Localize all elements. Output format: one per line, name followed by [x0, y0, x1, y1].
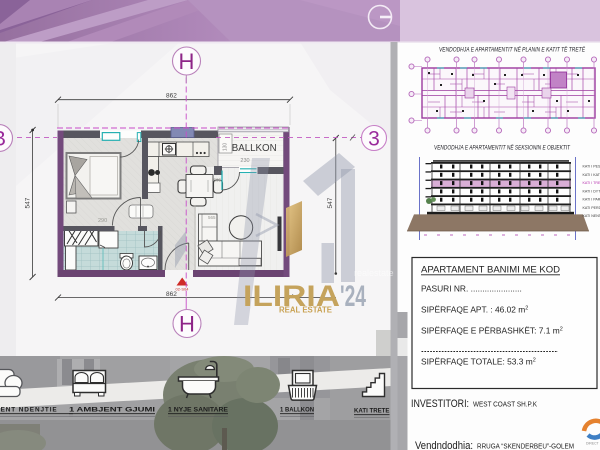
svg-text:BALLKON: BALLKON — [232, 143, 277, 154]
svg-text:'24: '24 — [340, 280, 366, 313]
svg-text:KATI I PESTE: KATI I PESTE — [583, 165, 600, 169]
svg-text:SIPËRFAQE E PËRBASHKËT: 7.1 m: SIPËRFAQE E PËRBASHKËT: 7.1 m2 — [421, 326, 563, 336]
svg-text:Vendndodhia:: Vendndodhia: — [415, 440, 473, 450]
svg-text:1 BALLKON: 1 BALLKON — [280, 407, 314, 414]
svg-text:KATI I DYTE: KATI I DYTE — [583, 189, 600, 193]
svg-text:547: 547 — [25, 197, 32, 208]
svg-text:3: 3 — [368, 128, 380, 151]
svg-text:505: 505 — [214, 178, 222, 183]
svg-text:PASURI NR. ...................: PASURI NR. ...................... — [421, 284, 522, 294]
svg-text:SIPËRFAQE TOTALE: 53.3 m2: SIPËRFAQE TOTALE: 53.3 m2 — [421, 357, 536, 367]
svg-text:KATI TRETE: KATI TRETE — [354, 408, 390, 415]
svg-text:B: B — [0, 128, 6, 151]
svg-text:02-S04: 02-S04 — [176, 287, 190, 292]
svg-text:290: 290 — [98, 218, 107, 224]
svg-text:230: 230 — [240, 158, 249, 164]
svg-text:VENDODHJA E APARTAMENTIT NË SE: VENDODHJA E APARTAMENTIT NË SEKSIONIN E … — [434, 145, 571, 152]
svg-text:1 NYJE SANITARE: 1 NYJE SANITARE — [168, 407, 229, 414]
svg-text:862: 862 — [166, 93, 177, 100]
svg-text:H: H — [179, 49, 195, 74]
svg-text:565: 565 — [208, 215, 216, 220]
svg-text:862: 862 — [166, 291, 177, 298]
svg-text:KATI NENTOKE: KATI NENTOKE — [583, 214, 600, 218]
svg-text:KATI I TRETE: KATI I TRETE — [583, 181, 600, 185]
svg-text:KATI I PARE: KATI I PARE — [583, 198, 600, 202]
svg-text:1 AMBJENT NDENJTIE: 1 AMBJENT NDENJTIE — [0, 407, 58, 414]
svg-text:APARTAMENT BANIMI ME KOD: APARTAMENT BANIMI ME KOD — [421, 265, 560, 275]
svg-text:SIPËRFAQE APT. : 46.02 m2: SIPËRFAQE APT. : 46.02 m2 — [421, 305, 528, 315]
svg-text:REAL ESTATE: REAL ESTATE — [279, 306, 333, 315]
svg-text:RRUGA “SKENDERBEU”-GOLEM: RRUGA “SKENDERBEU”-GOLEM — [477, 442, 574, 450]
svg-text:VENDODHJA E APARTAMENTIT NË PL: VENDODHJA E APARTAMENTIT NË PLANIN E KAT… — [439, 47, 586, 54]
svg-text:realestate: realestate — [354, 268, 394, 278]
svg-text:1 AMBJENT GJUMI: 1 AMBJENT GJUMI — [69, 407, 155, 414]
svg-text:DIRECT: DIRECT — [586, 442, 599, 446]
svg-text:H: H — [179, 312, 195, 337]
svg-text:INVESTITORI:: INVESTITORI: — [411, 398, 469, 410]
svg-text:130: 130 — [223, 143, 229, 152]
svg-text:WEST COAST SH.P.K: WEST COAST SH.P.K — [473, 400, 537, 409]
svg-text:KATI PERDHE: KATI PERDHE — [583, 206, 600, 210]
svg-text:547: 547 — [327, 197, 334, 208]
svg-text:KATI I KATERT: KATI I KATERT — [583, 173, 600, 177]
